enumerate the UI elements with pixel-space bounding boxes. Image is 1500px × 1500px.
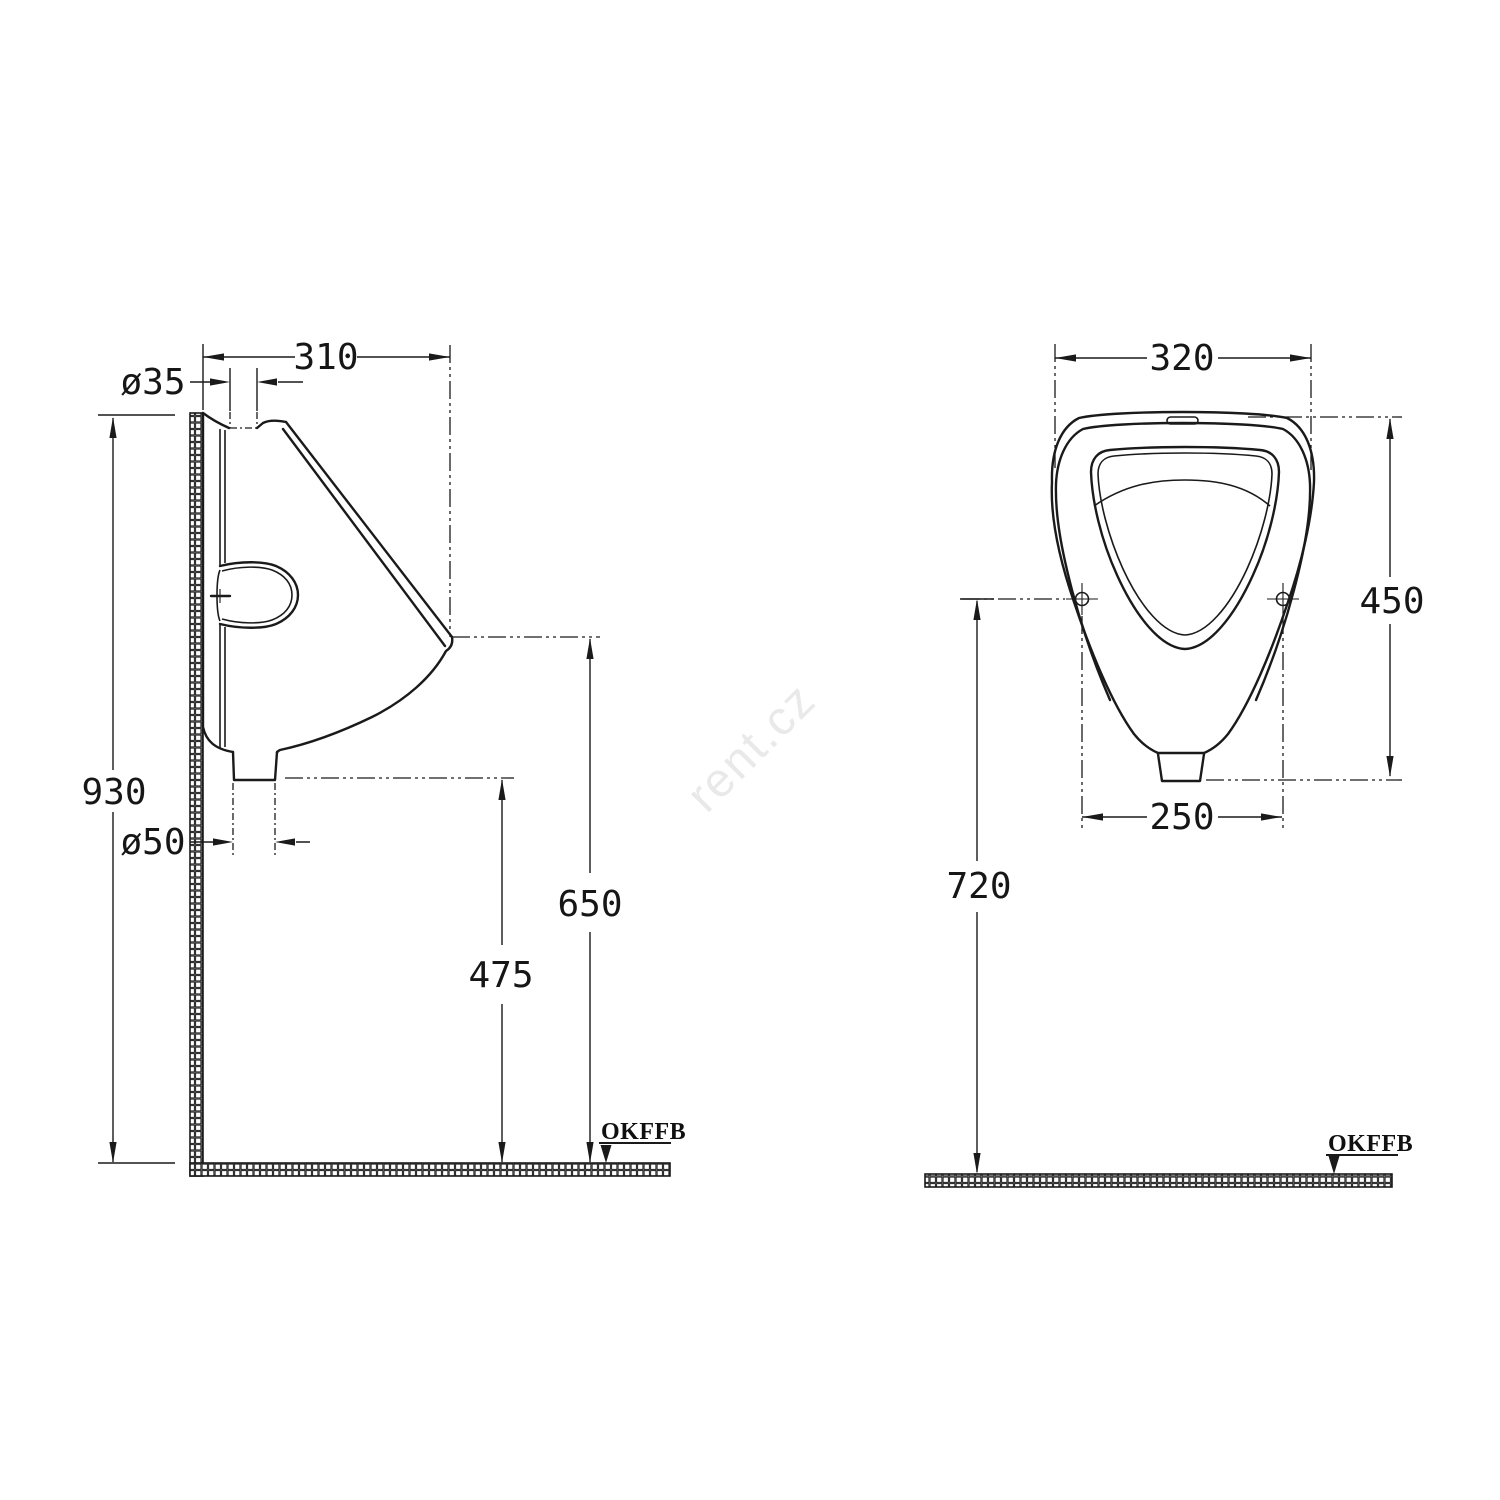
drawing-svg: rent.cz xyxy=(0,0,1500,1500)
dim-475: 475 xyxy=(468,779,533,1163)
dim-320-label: 320 xyxy=(1149,338,1214,379)
dim-930: 930 xyxy=(81,415,175,1163)
side-view: 310 ø35 930 ø50 475 xyxy=(81,337,686,1176)
outlet-foot-side xyxy=(233,752,277,780)
front-slant-outer xyxy=(286,422,452,637)
watermark-text: rent.cz xyxy=(677,673,826,822)
floor-datum-left: OKFFB xyxy=(599,1119,686,1163)
dim-450-label: 450 xyxy=(1359,581,1424,622)
dim-d50-label: ø50 xyxy=(120,822,185,863)
dim-450: 450 xyxy=(1359,418,1424,777)
mounting-face-lines xyxy=(220,429,225,748)
dim-650-label: 650 xyxy=(557,884,622,925)
dim-250-label: 250 xyxy=(1149,797,1214,838)
rim-channel-outer xyxy=(220,562,298,628)
okffb-label-left: OKFFB xyxy=(601,1119,686,1145)
dim-650: 650 xyxy=(557,638,622,1163)
second-contour xyxy=(1056,423,1310,700)
top-edge-left xyxy=(203,413,229,428)
rim-opening-outer xyxy=(1091,447,1279,649)
front-slant-inner xyxy=(283,429,445,646)
outlet-foot-front xyxy=(1158,754,1204,781)
dim-310-label: 310 xyxy=(293,337,358,378)
floor-datum-right: OKFFB xyxy=(1326,1131,1413,1174)
top-edge-right xyxy=(257,421,286,428)
floor-section-hatch-right xyxy=(925,1174,1392,1187)
basin-back-edge xyxy=(1094,480,1270,506)
dim-d35-label: ø35 xyxy=(120,362,185,403)
dim-250: 250 xyxy=(1082,797,1282,838)
urinal-side-profile xyxy=(203,413,452,780)
dim-320: 320 xyxy=(1055,338,1311,379)
bowl-underside xyxy=(277,637,452,753)
dimension-drawing: rent.cz xyxy=(0,0,1500,1500)
dim-930-label: 930 xyxy=(81,772,146,813)
rim-channel-inner xyxy=(222,567,292,623)
dim-outlet-diameter: ø50 xyxy=(120,822,310,863)
okffb-label-right: OKFFB xyxy=(1328,1131,1413,1157)
urinal-front-outline xyxy=(1052,412,1314,781)
dim-inlet-diameter: ø35 xyxy=(120,362,303,411)
dim-310: 310 xyxy=(203,337,450,410)
wall-section-hatch xyxy=(190,413,203,1176)
dim-720: 720 xyxy=(946,599,1011,1174)
front-view: 320 450 250 720 OKFFB xyxy=(925,338,1425,1187)
floor-section-hatch-left xyxy=(190,1163,670,1176)
dim-720-label: 720 xyxy=(946,866,1011,907)
dim-475-label: 475 xyxy=(468,955,533,996)
